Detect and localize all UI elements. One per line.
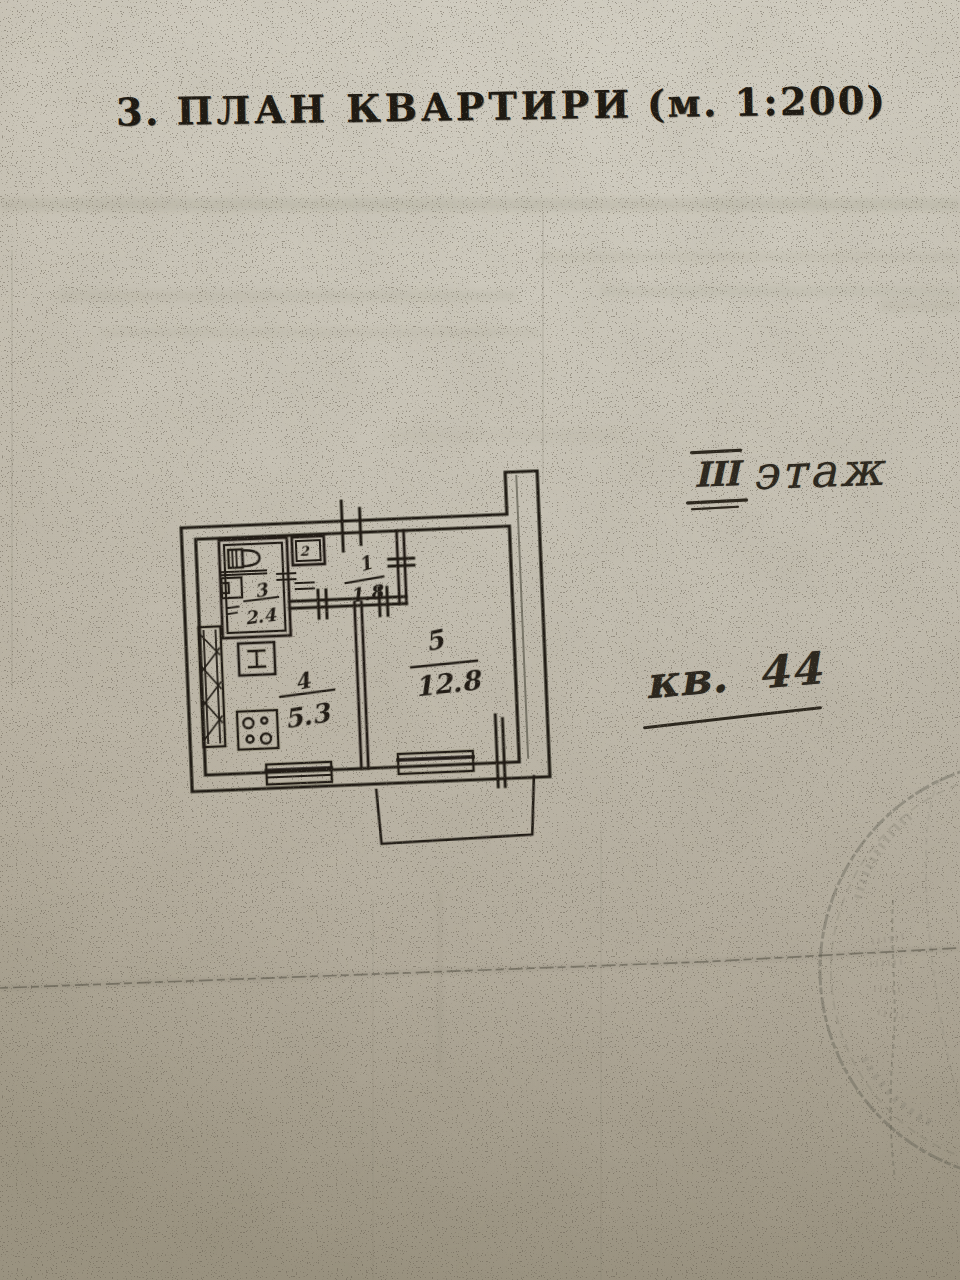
- floor-word: этаж: [751, 442, 886, 501]
- apartment-underline: [643, 706, 822, 729]
- balcony-outline: [376, 776, 536, 844]
- section-number: 3.: [116, 89, 161, 135]
- ghost-bar: [880, 300, 960, 312]
- ghost-bar: [0, 198, 960, 211]
- bath-box-icon: [238, 642, 275, 675]
- apartment-number: кв. 44: [643, 642, 825, 708]
- room-3-label: 3 2.4: [227, 578, 279, 629]
- scale-text: (м. 1:200): [647, 77, 888, 126]
- ghost-bar: [380, 430, 620, 441]
- ghost-bar: [100, 328, 540, 338]
- room-1-label: 1 1.8: [344, 550, 386, 606]
- door-ticks: [314, 495, 505, 794]
- ghost-line: [542, 214, 544, 484]
- floor-plan: 1 1.8 2 3 2.4 4 5.3 5 12.8: [0, 0, 960, 1280]
- svg-text:12.8: 12.8: [413, 664, 485, 702]
- kitchen-window: [266, 762, 332, 785]
- room-2-label: 2: [299, 544, 310, 559]
- scanned-page: { "document": { "section_number": "3.", …: [0, 0, 960, 1280]
- ghost-bar: [540, 252, 960, 262]
- crease-line: [0, 948, 960, 988]
- page-title: 3.ПЛАН КВАРТИРИ(м. 1:200): [116, 79, 817, 135]
- ghost-line: [11, 250, 13, 690]
- interior-walls: [287, 531, 414, 772]
- ghost-line: [372, 900, 374, 1280]
- svg-text:1.8: 1.8: [348, 580, 386, 607]
- floor-numeral: III: [693, 453, 739, 495]
- outer-walls: [179, 471, 549, 792]
- svg-text:1: 1: [356, 551, 375, 576]
- room-labels: 1 1.8 2 3 2.4 4 5.3 5 12.8: [226, 536, 486, 736]
- stamp-edge-streak: [891, 900, 895, 1180]
- paper-grain: [0, 0, 960, 1280]
- stamp-and-crease-layer: [0, 0, 960, 1280]
- room-5-label: 5 12.8: [409, 622, 485, 703]
- roman-underline-1: [686, 498, 748, 504]
- sink-icon: [221, 577, 242, 598]
- roman-underline-2: [691, 506, 739, 511]
- ghost-bar: [600, 286, 960, 297]
- toilet-icon: [228, 549, 260, 568]
- svg-text:3: 3: [253, 578, 271, 601]
- stamp: [820, 760, 960, 1180]
- bleed-through-layer: [0, 0, 960, 1280]
- bathroom-shelf: [220, 570, 266, 575]
- ghost-line: [600, 830, 602, 1280]
- vent-shaft: [198, 626, 225, 747]
- bathroom-door-ticks: [277, 572, 314, 589]
- svg-text:5.3: 5.3: [282, 697, 333, 734]
- title-text: ПЛАН КВАРТИРИ: [176, 81, 633, 133]
- svg-text:4: 4: [292, 667, 313, 696]
- room-4-label: 4 5.3: [279, 666, 336, 735]
- fold-mark: [438, 892, 442, 1072]
- paper-mottle: [0, 0, 960, 1280]
- stove-icon: [237, 710, 279, 750]
- apartment-annotation: кв. 44: [643, 639, 869, 738]
- floor-annotation: III этаж: [686, 444, 916, 514]
- svg-text:5: 5: [422, 624, 448, 658]
- living-room-window: [398, 751, 474, 774]
- svg-text:2.4: 2.4: [243, 604, 277, 629]
- bathroom-walls: [219, 536, 328, 638]
- ghost-bar: [58, 290, 518, 302]
